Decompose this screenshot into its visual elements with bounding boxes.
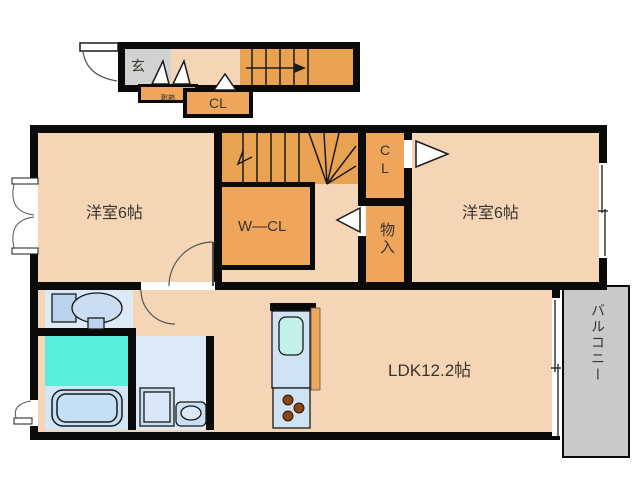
wall-bottom bbox=[30, 432, 560, 440]
door-opening-closet bbox=[404, 140, 412, 168]
genkan-label: 玄 bbox=[131, 56, 145, 76]
bedroom-right-label: 洋室6帖 bbox=[462, 199, 519, 223]
window-bath bbox=[30, 400, 38, 426]
bedroom-left-label: 洋室6帖 bbox=[86, 199, 143, 223]
wall bbox=[128, 336, 136, 430]
toilet-room bbox=[45, 290, 133, 328]
bathroom-floor bbox=[45, 336, 128, 386]
floor-plan: 靴箱 CL bbox=[0, 0, 640, 480]
window-bedroom-left bbox=[30, 178, 38, 252]
entrance-door bbox=[80, 43, 118, 81]
door-opening-storage bbox=[358, 206, 366, 236]
wall bbox=[206, 336, 214, 430]
door-opening-hall bbox=[141, 282, 215, 290]
ldk-label: LDK12.2帖 bbox=[388, 356, 471, 381]
closet-1f-label: CL bbox=[209, 95, 227, 111]
wall-middle bbox=[30, 282, 607, 290]
closet-1f: CL bbox=[183, 88, 253, 118]
stairs-2f bbox=[222, 133, 358, 184]
wall-center bbox=[214, 133, 222, 290]
washroom bbox=[136, 336, 206, 430]
wall bbox=[38, 328, 136, 336]
wall-top bbox=[30, 125, 607, 133]
storage-label: 物入 bbox=[376, 222, 397, 256]
window-bedroom-right bbox=[599, 163, 607, 258]
closet-2f-label: CL bbox=[377, 142, 393, 178]
shoe-cabinet-label: 靴箱 bbox=[161, 95, 175, 102]
balcony-label: バルコニー bbox=[588, 303, 608, 383]
balcony-sliding-door bbox=[552, 298, 560, 436]
walk-in-closet-label: W―CL bbox=[238, 218, 286, 235]
stairs-1f bbox=[240, 49, 353, 85]
bathtub-area bbox=[45, 386, 128, 430]
